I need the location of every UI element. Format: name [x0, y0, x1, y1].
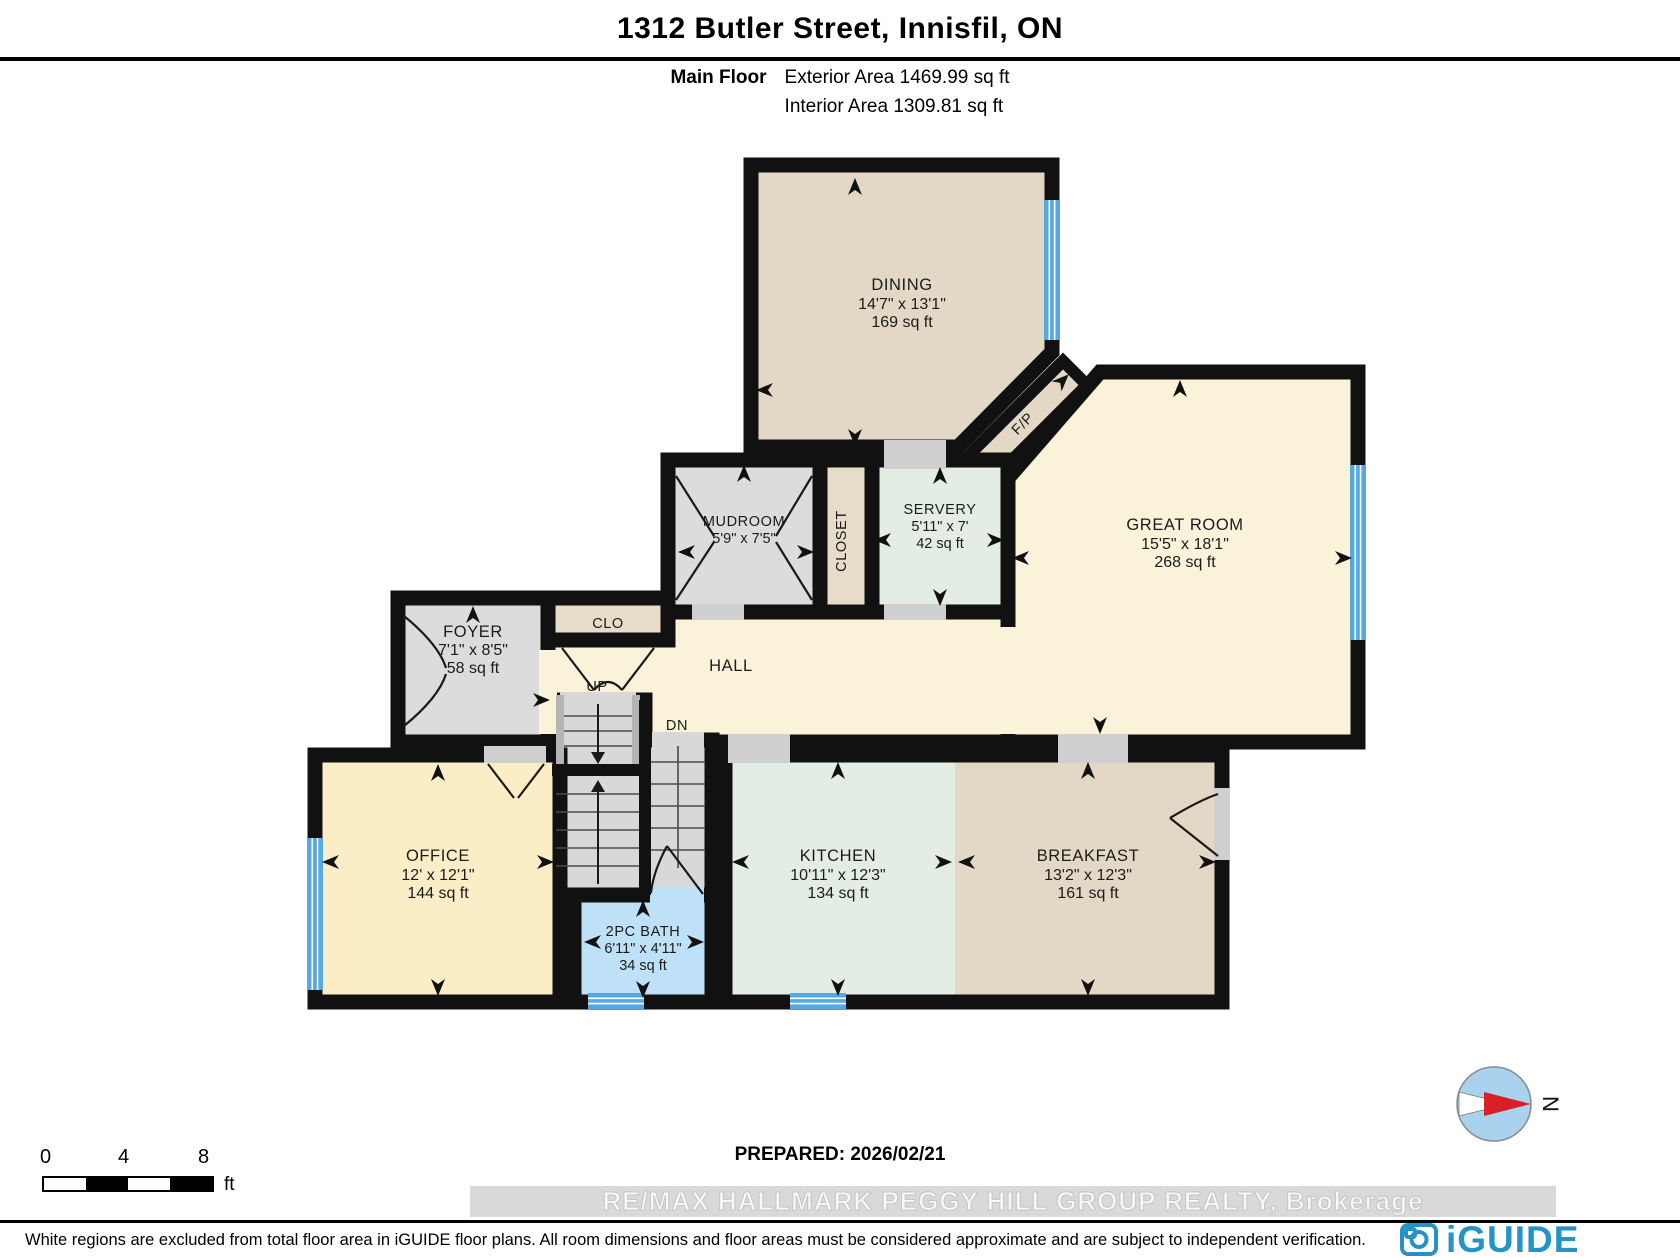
dining-window [1044, 200, 1060, 340]
label-dining-area: 169 sq ft [871, 314, 933, 331]
interior-area: Interior Area 1309.81 sq ft [785, 97, 1010, 118]
label-great-room-dims: 15'5" x 18'1" [1141, 536, 1229, 553]
camera-icon [1402, 1225, 1436, 1254]
label-office: OFFICE [406, 847, 470, 865]
label-foyer: FOYER [443, 623, 503, 641]
exterior-area: Exterior Area 1469.99 sq ft [785, 68, 1010, 89]
compass-north-label: N [1538, 1096, 1563, 1112]
iguide-logo-text: iGUIDE [1446, 1219, 1579, 1258]
iguide-logo: iGUIDE [1398, 1218, 1678, 1258]
label-servery: SERVERY [904, 502, 977, 518]
label-servery-area: 42 sq ft [916, 536, 964, 552]
floor-label: Main Floor [670, 68, 766, 118]
label-closet: CLOSET [834, 510, 850, 572]
header-divider [0, 57, 1680, 61]
label-foyer-area: 58 sq ft [447, 660, 500, 677]
floorplan-page: 1312 Butler Street, Innisfil, ON Main Fl… [0, 0, 1680, 1258]
label-hall: HALL [709, 657, 753, 675]
label-stairs-dn: DN [666, 718, 688, 734]
label-mudroom-dims: 5'9" x 7'5" [712, 531, 775, 547]
great-room-window [1350, 465, 1366, 640]
brokerage-watermark: RE/MAX HALLMARK PEGGY HILL GROUP REALTY,… [470, 1186, 1556, 1217]
label-office-area: 144 sq ft [407, 885, 469, 902]
office-window [307, 838, 323, 990]
label-great-room: GREAT ROOM [1126, 516, 1243, 534]
label-bath: 2PC BATH [606, 924, 681, 940]
floorplan-drawing: DINING 14'7" x 13'1" 169 sq ft GREAT ROO… [0, 140, 1680, 1040]
floor-meta: Main Floor Exterior Area 1469.99 sq ft I… [0, 68, 1680, 118]
label-servery-dims: 5'11" x 7' [911, 519, 968, 535]
page-title: 1312 Butler Street, Innisfil, ON [0, 12, 1680, 46]
label-kitchen-area: 134 sq ft [807, 885, 869, 902]
label-office-dims: 12' x 12'1" [401, 867, 474, 884]
prepared-date: PREPARED: 2026/02/21 [0, 1144, 1680, 1166]
label-bath-area: 34 sq ft [619, 958, 667, 974]
label-kitchen-dims: 10'11" x 12'3" [790, 867, 885, 884]
label-stairs-up: UP [586, 679, 607, 695]
label-bath-dims: 6'11" x 4'11" [604, 941, 681, 957]
label-breakfast: BREAKFAST [1037, 847, 1140, 865]
compass: N [1442, 1058, 1582, 1154]
label-clo: CLO [592, 616, 624, 632]
label-great-room-area: 268 sq ft [1154, 554, 1216, 571]
label-mudroom: MUDROOM [703, 514, 785, 530]
scale-unit: ft [224, 1174, 235, 1196]
kitchen-window [790, 993, 846, 1009]
label-kitchen: KITCHEN [800, 847, 877, 865]
label-dining-dims: 14'7" x 13'1" [858, 296, 946, 313]
bath-window [588, 993, 644, 1009]
scale-bar-segments [42, 1176, 214, 1192]
label-foyer-dims: 7'1" x 8'5" [438, 642, 508, 659]
label-dining: DINING [871, 276, 932, 294]
label-breakfast-area: 161 sq ft [1057, 885, 1119, 902]
label-breakfast-dims: 13'2" x 12'3" [1044, 867, 1132, 884]
